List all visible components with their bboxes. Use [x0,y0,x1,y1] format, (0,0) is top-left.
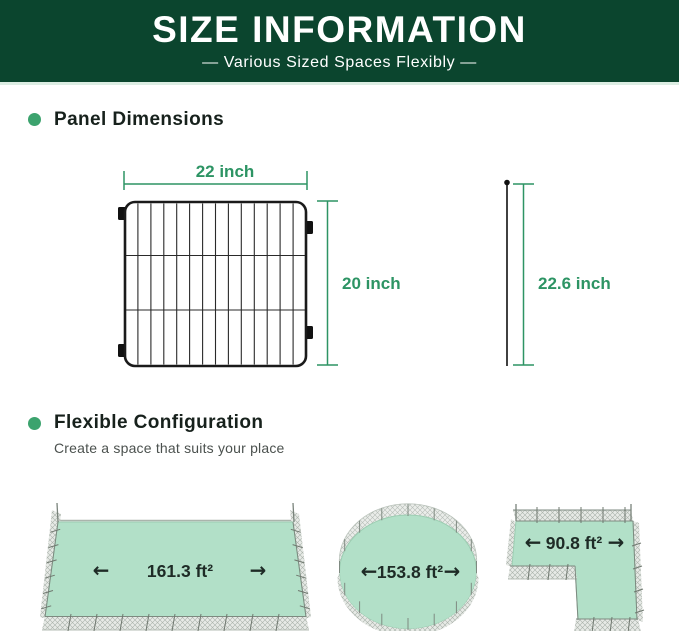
arrow-right-icon: → [608,530,625,554]
panel-dimension-diagram: 22 inch [0,148,679,392]
ground-stake-diagram: 22.6 inch [504,180,611,366]
fence-front [42,616,309,630]
l-shape-area-label: 90.8 ft² [546,533,603,553]
fence-top [513,510,633,521]
panel-dimensions-section-header: Panel Dimensions [28,110,224,129]
arrow-left-icon: ← [93,558,110,582]
fence-panel [118,202,313,366]
arrow-right-icon: → [250,558,267,582]
height-dimension-label: 20 inch [342,274,401,293]
stake-dimension-label: 22.6 inch [538,274,611,293]
arrow-left-icon: ← [525,530,542,554]
height-dimension: 20 inch [317,201,401,365]
header-banner: SIZE INFORMATION — Various Sized Spaces … [0,0,679,85]
config-circle: ← 153.8 ft² → [338,504,479,631]
circle-area-label: 153.8 ft² [377,562,443,582]
arrow-right-icon: → [444,559,461,583]
section-subtitle: Create a space that suits your place [54,440,285,456]
page-title: SIZE INFORMATION [0,9,679,51]
config-l-shape: ← 90.8 ft² → [506,504,644,631]
width-dimension: 22 inch [124,162,307,190]
bullet-icon [28,113,41,126]
page-subtitle: — Various Sized Spaces Flexibly — [0,54,679,72]
flexible-configuration-section-header: Flexible Configuration Create a space th… [28,413,285,456]
section-title: Flexible Configuration [54,413,285,432]
fence-bottom [574,619,641,631]
config-rectangle: ← 161.3 ft² → [40,503,311,631]
configuration-shapes-diagram: ← 161.3 ft² → [0,478,679,631]
size-information-infographic: SIZE INFORMATION — Various Sized Spaces … [0,0,679,631]
rectangle-area-label: 161.3 ft² [147,561,213,581]
bullet-icon [28,417,41,430]
width-dimension-label: 22 inch [196,162,255,181]
section-title: Panel Dimensions [54,110,224,129]
arrow-left-icon: ← [361,559,378,583]
